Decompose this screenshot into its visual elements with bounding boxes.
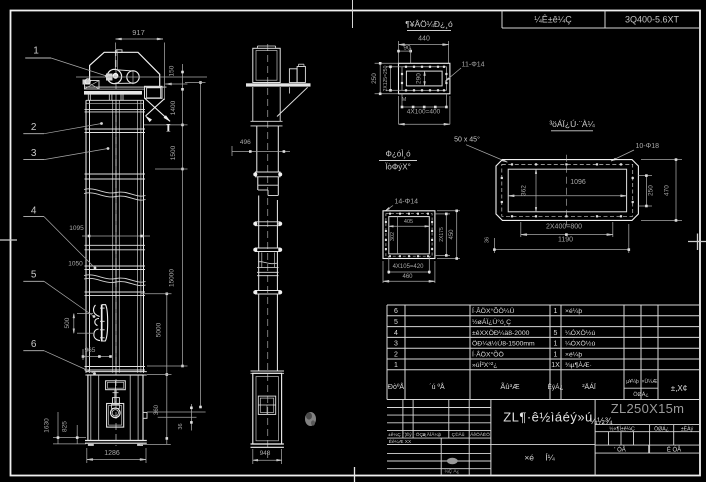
svg-text:3: 3 [394,341,398,348]
svg-text:M: M [402,97,407,103]
svg-text:Í·ÂÖΧ°ÕÖ: Í·ÂÖΧ°ÕÖ [472,349,504,358]
svg-text:2Χ175: 2Χ175 [439,227,445,242]
svg-text:825: 825 [62,421,69,432]
svg-text:4: 4 [394,330,398,337]
svg-text:2Χ400=800: 2Χ400=800 [546,224,582,231]
svg-text:2: 2 [31,122,37,133]
svg-text:1: 1 [554,351,558,358]
svg-text:250: 250 [648,185,655,196]
svg-text:4: 4 [31,206,37,217]
svg-text:1Χ: 1Χ [551,362,560,369]
svg-text:Ãû³Æ: Ãû³Æ [500,382,520,391]
svg-text:Φ¿óÌ¸ó: Φ¿óÌ¸ó [385,150,411,159]
svg-text:µ¥¼þ: µ¥¼þ [626,379,639,385]
svg-text:250: 250 [371,73,378,84]
svg-text:¶¥ÂÖ¼Ð¿¸ó: ¶¥ÂÖ¼Ð¿¸ó [405,19,453,29]
svg-text:36: 36 [178,423,184,429]
svg-text:±,Χ¢: ±,Χ¢ [671,384,687,393]
svg-text:¼Ç Á¿: ¼Ç Á¿ [445,468,460,475]
svg-text:4Χ100=400: 4Χ100=400 [407,109,441,116]
svg-text:×é: ×é [524,453,534,463]
svg-text:470: 470 [664,185,671,196]
svg-text:15000: 15000 [169,269,176,287]
svg-text:ÖØÁ¿: ÖØÁ¿ [633,391,649,398]
svg-text:405: 405 [404,219,413,225]
svg-text:11-Φ14: 11-Φ14 [462,62,485,69]
svg-text:302: 302 [390,232,396,241]
svg-text:1190: 1190 [558,237,573,244]
svg-text:360: 360 [154,404,160,415]
svg-text:1630: 1630 [44,418,51,433]
svg-text:´ú ºÅ: ´ú ºÅ [429,382,445,391]
svg-text:10-Φ18: 10-Φ18 [636,143,660,150]
svg-text:948: 948 [260,450,271,457]
svg-text:¸ü¸ÄÎÄ¼þ: ¸ü¸ÄÎÄ¼þ [421,431,442,438]
svg-text:460: 460 [402,274,413,280]
svg-text:¼Ê±ê¼Ç: ¼Ê±ê¼Ç [534,15,572,25]
svg-text:¾µ¶ÀÆ·: ¾µ¶ÀÆ· [565,360,592,369]
svg-text:5: 5 [554,330,558,337]
svg-text:440: 440 [418,36,430,43]
svg-text:¼ÓΧÖ½ú: ¼ÓΧÖ½ú [565,328,595,337]
svg-text:1: 1 [554,341,558,348]
svg-text:ÖØÁ¿: ÖØÁ¿ [654,425,669,432]
svg-text:³öÁÏ¿Ú·¨À¼: ³öÁÏ¿Ú·¨À¼ [549,119,595,129]
svg-text:ÊýÁ¿: ÊýÁ¿ [548,382,564,391]
svg-text:1500: 1500 [170,145,177,160]
svg-text:5000: 5000 [156,322,163,337]
svg-text:5: 5 [394,319,398,326]
svg-text:6: 6 [394,308,398,315]
svg-text:496: 496 [240,139,251,146]
svg-text:6: 6 [31,339,37,350]
svg-text:1095: 1095 [69,225,84,232]
svg-text:2: 2 [394,351,398,358]
svg-text:±êΧΧÖÐ¼ä8-2000: ±êΧΧÖÐ¼ä8-2000 [472,329,530,337]
svg-text:±ÈÀý: ±ÈÀý [681,425,694,432]
svg-text:½øÁÏ¿Ú°ó¸Ç: ½øÁÏ¿Ú°ó¸Ç [472,317,511,326]
svg-text:500: 500 [64,317,71,328]
svg-text:1096: 1096 [570,179,586,186]
svg-text:36: 36 [485,237,491,243]
svg-text:14-Φ14: 14-Φ14 [395,199,419,206]
svg-text:3Q400-5.6ΧT: 3Q400-5.6ΧT [625,15,680,25]
svg-text:»úÍ²Χ°²¿: »úÍ²Χ°²¿ [472,360,497,369]
svg-text:917: 917 [132,28,145,37]
svg-text:Ë ÓÅ: Ë ÓÅ [667,446,681,453]
svg-text:×é¼þ: ×é¼þ [565,308,582,315]
svg-text:½×¶Î±ê¼Ç: ½×¶Î±ê¼Ç [609,425,635,432]
svg-text:×é¼þ: ×é¼þ [565,351,582,358]
svg-text:ZL250Χ15m: ZL250Χ15m [611,401,685,416]
svg-text:×Ü¼Æ: ×Ü¼Æ [642,378,658,385]
svg-text:I: I [166,121,171,135]
svg-text:1400: 1400 [170,100,177,115]
svg-text:4Χ105=420: 4Χ105=420 [393,264,425,270]
svg-text:1050: 1050 [68,261,83,268]
svg-text:²ÄÁÏ: ²ÄÁÏ [582,382,596,391]
svg-text:362: 362 [521,185,528,196]
svg-text:¼ÓΧÖ½ú: ¼ÓΧÖ½ú [565,339,595,348]
svg-text:±ê¼Ç: ±ê¼Ç [388,432,401,438]
svg-text:ÖÐ¼ä½Ú8-1500mm: ÖÐ¼ä½Ú8-1500mm [472,339,535,348]
svg-text:1286: 1286 [104,450,120,457]
svg-text:2Χ125=250: 2Χ125=250 [383,65,389,91]
svg-text:3: 3 [31,148,37,159]
svg-text:50 x 45°: 50 x 45° [454,136,480,144]
svg-text:290: 290 [415,73,422,84]
svg-text:450: 450 [449,229,455,240]
svg-text:5: 5 [31,270,37,281]
svg-text:ZL¶·ê½ìáéý»ú: ZL¶·ê½ìáéý»ú [503,410,593,425]
svg-text:1: 1 [394,362,398,369]
svg-text:Í¼: Í¼ [545,453,555,463]
svg-text:ÏòΦýΧ°: ÏòΦýΧ° [385,163,411,172]
svg-text:1: 1 [554,308,558,315]
svg-text:965: 965 [85,347,96,354]
svg-text:' ÓÅ: ' ÓÅ [614,446,625,453]
svg-text:150: 150 [168,65,175,76]
svg-text:ÄêÔÂÈÕ: ÄêÔÂÈÕ [470,431,490,438]
svg-text:ÐòºÅ: ÐòºÅ [388,382,405,391]
svg-text:1: 1 [33,46,39,57]
svg-text:Í·ÂÖΧ°ÕÖ¼Ü: Í·ÂÖΧ°ÕÖ¼Ü [472,306,514,315]
svg-text:Ç©Ãû: Ç©Ãû [452,431,465,438]
